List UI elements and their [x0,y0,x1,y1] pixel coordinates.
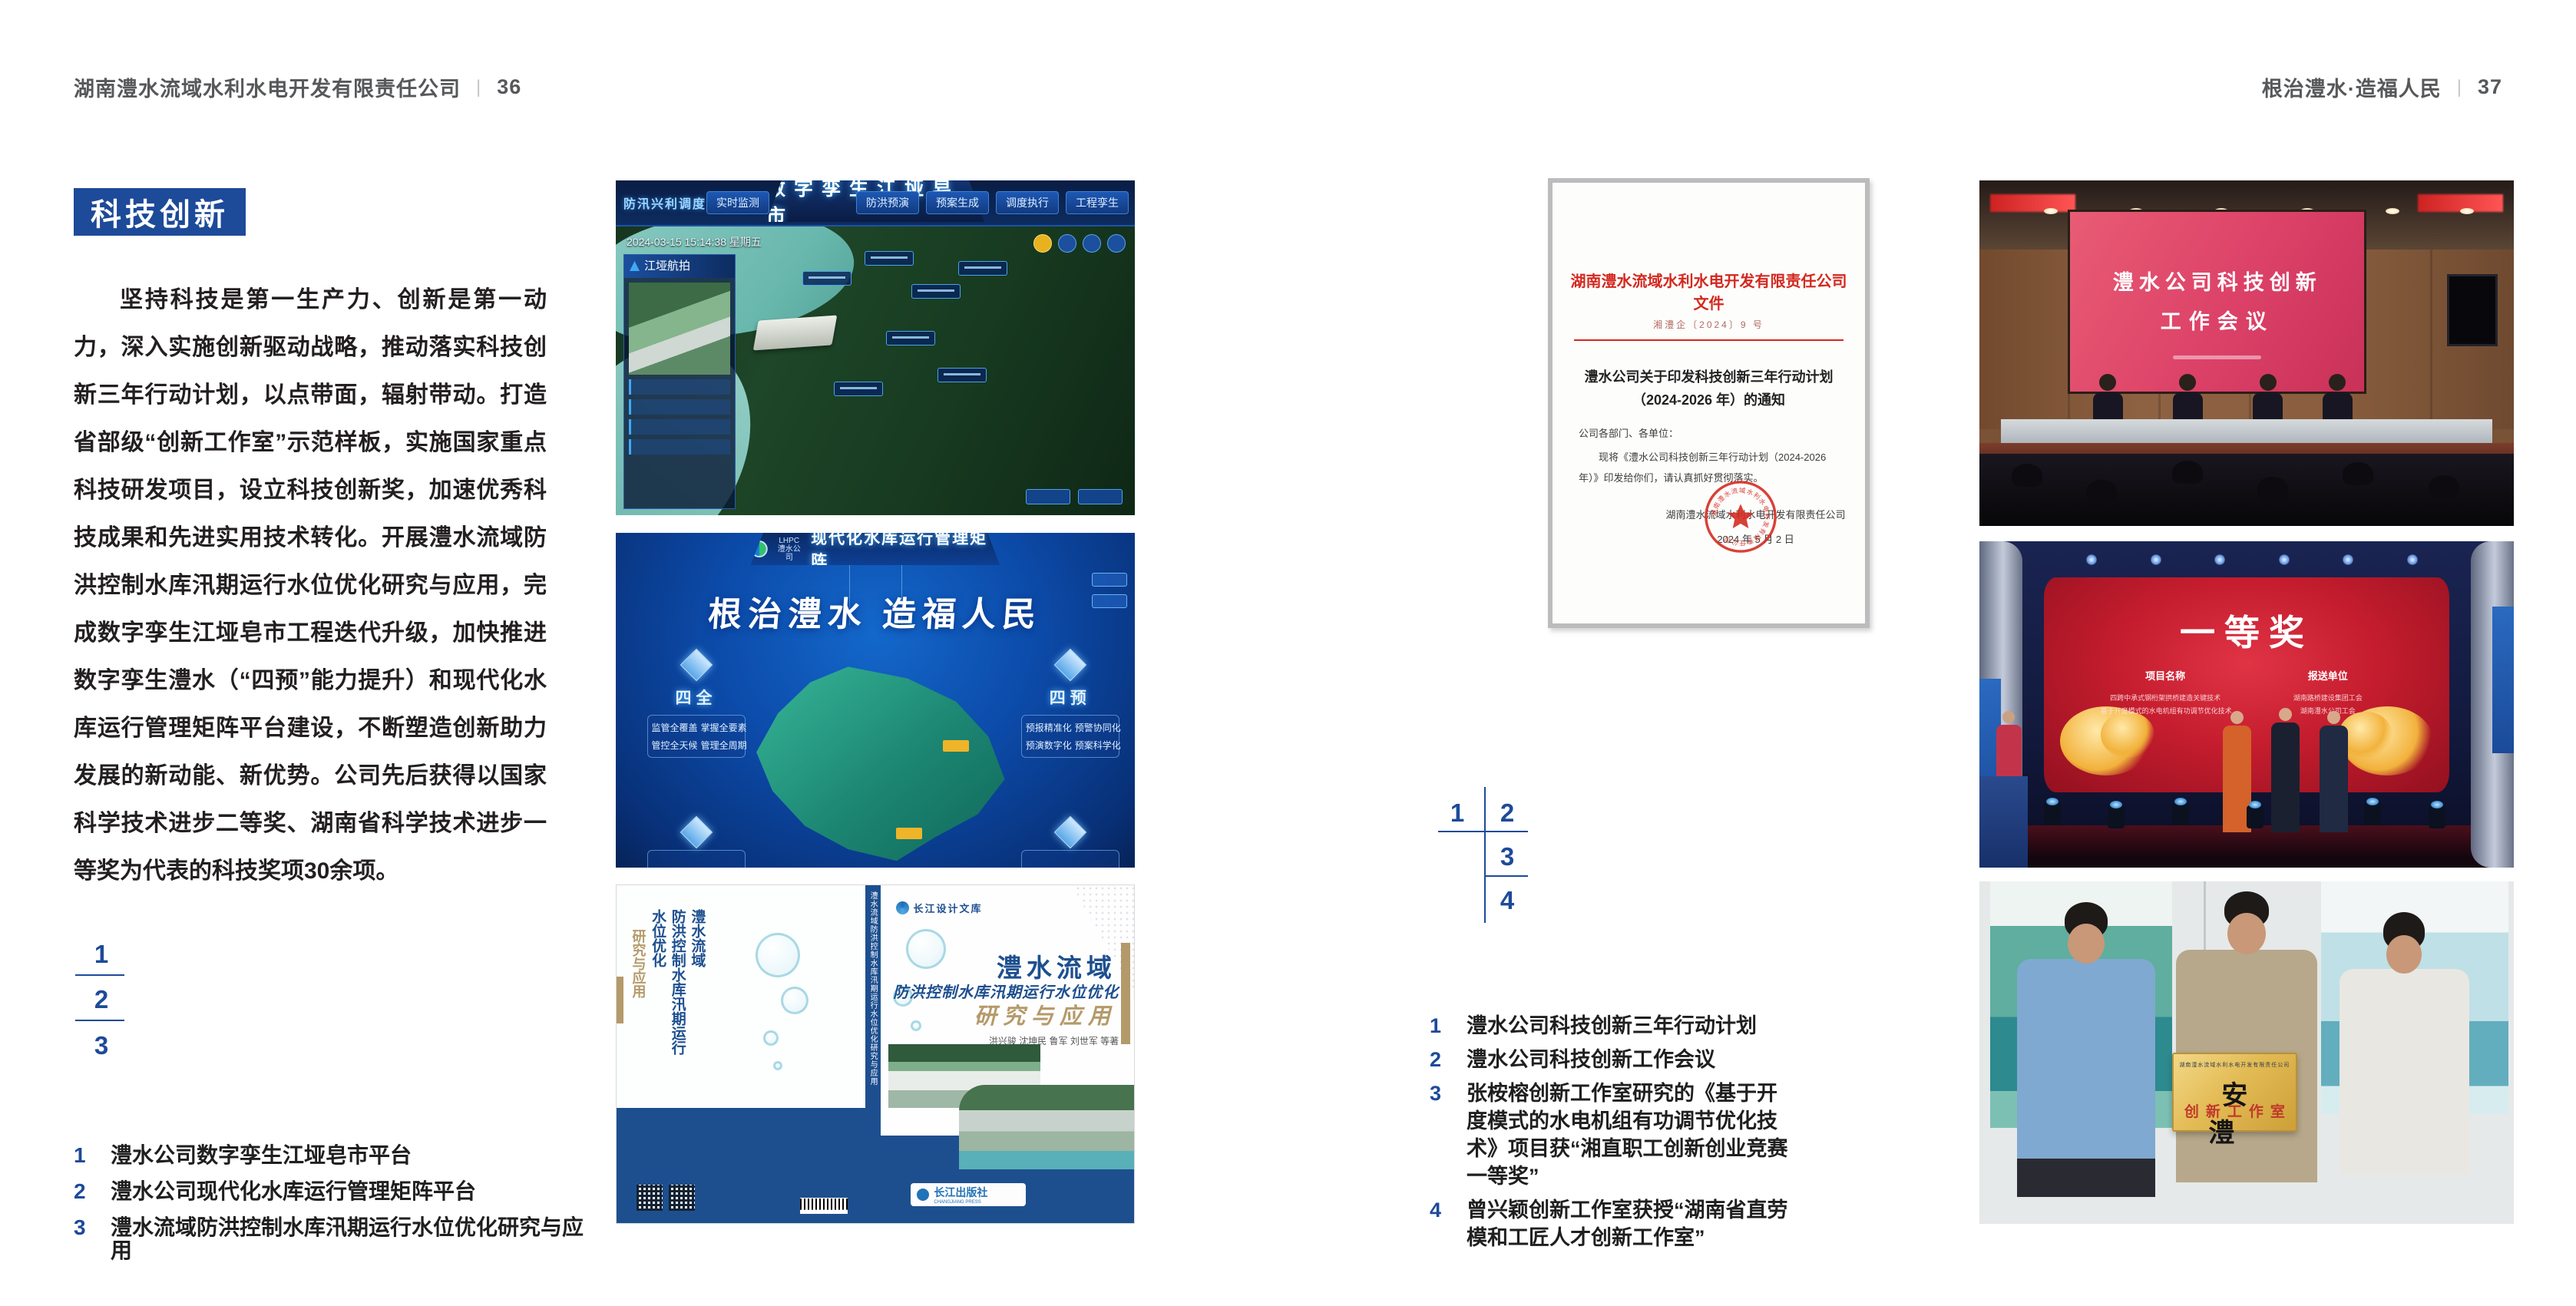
tool-icon [1083,234,1101,253]
document-number: 湘澧企〔2024〕9 号 [1553,318,1865,331]
caption-text: 澧水公司科技创新工作会议 [1467,1048,1715,1071]
right-page-header: 根治澧水·造福人民 | 37 [2262,72,2502,102]
award-headline: 一等奖 [2044,605,2450,656]
caption-row: 3 澧水流域防洪控制水库汛期运行水位优化研究与应用 [74,1216,596,1262]
person-white-shirt [2326,912,2482,1224]
caption-number: 3 [1430,1080,1441,1107]
dashboard-bottom-button [1026,489,1070,504]
decor-blue-panel [2492,607,2514,753]
audience-head [2429,475,2459,498]
book-title-line1: 澧水流域 [997,947,1116,984]
floor-light [2247,805,2264,828]
caption-row: 2 澧水公司现代化水库运行管理矩阵平台 [74,1180,596,1203]
diamond-icon [1054,649,1086,681]
data-row [629,379,730,395]
banner-date-line [2173,355,2261,359]
document-title: 澧水公司关于印发科技创新三年行动计划 （2024-2026 年）的通知 [1553,365,1865,412]
figure-index-vline [1484,787,1486,923]
book-back-cover: 澧水流域 防洪控制水库汛期运行水位优化 研究与应用 [617,885,865,1223]
left-captions: 1 澧水公司数字孪生江垭皂市平台 2 澧水公司现代化水库运行管理矩阵平台 3 澧… [74,1144,596,1275]
map-callout [911,284,961,299]
nav-button: 调度执行 [996,191,1059,214]
caption-text: 澧水公司科技创新三年行动计划 [1467,1014,1757,1037]
figure-index-3: 3 [1488,844,1526,870]
map-marker [943,740,969,752]
caption-number: 3 [74,1216,86,1239]
matrix-title: 现代化水库运行管理矩阵 [811,533,1000,572]
water-bubble [763,1030,779,1046]
diamond-icon [1054,816,1086,848]
map-callout [865,251,914,266]
stage-spotlight [2086,554,2097,565]
ceiling-light [2044,208,2058,214]
floor-light [2429,805,2445,828]
dashboard-toolbar-icons [1033,234,1126,253]
logo-abbr: LHPC [774,537,804,545]
document-page: 湖南澧水流域水利水电开发有限责任公司文件 湘澧企〔2024〕9 号 澧水公司关于… [1553,183,1865,623]
back-title-3: 研究与应用 [630,929,646,998]
spine-title: 澧水流域防洪控制水库汛期运行水位优化研究与应用 [867,891,878,1223]
matrix-node-siquan: 四全 监管全覆盖 掌握全要素 管控全天候 管理全周期 [647,653,746,758]
photo-innovation-meeting: 澧水公司科技创新 工作会议 [1979,180,2514,526]
node-item: 监管全覆盖 [652,721,698,734]
figure-index-2: 2 [1488,800,1526,826]
back-cover-vertical-title: 澧水流域 防洪控制水库汛期运行水位优化 研究与应用 [629,909,706,1058]
audience [1979,454,2514,527]
column-item: 四跨中承式钢桁架拱桥建造关键技术 [2101,692,2230,705]
node-item: 管理全周期 [701,739,747,752]
plaque-subtitle: 创新工作室 [2174,1100,2297,1121]
plaque-org-line: 湖南澧水流域水利水电开发有限责任公司 [2174,1061,2297,1069]
document-title-line1: 澧水公司关于印发科技创新三年行动计划 [1553,365,1865,388]
panel-title: 江垭航拍 [624,255,735,278]
aerial-video-thumbnail [629,283,730,375]
document-red-title: 湖南澧水流域水利水电开发有限责任公司文件 [1565,269,1852,313]
stage-spotlight [2343,554,2353,565]
face [2386,935,2422,974]
header-separator: | [476,77,481,98]
series-line: 长江设计文库 [896,901,983,915]
back-title-2: 防洪控制水库汛期运行水位优化 [650,909,686,1055]
dashboard-corner-label: 防汛兴利调度 [623,193,706,212]
node-items: 预报精准化 预警协同化 预演数字化 预案科学化 [1021,715,1119,758]
awardee-suit [2316,711,2350,841]
data-row [629,399,730,415]
figure-index-4: 4 [1488,888,1526,914]
book-spine: 澧水流域防洪控制水库汛期运行水位优化研究与应用 [865,885,881,1223]
figure-index-1: 1 [77,941,126,967]
matrix-node-bottom-right [1021,821,1119,868]
nav-button: 实时监测 [706,191,769,214]
book-title-line3: 研究与应用 [974,998,1116,1030]
dam-photo-2 [959,1085,1134,1169]
qr-code [669,1185,695,1211]
caption-number: 4 [1430,1196,1441,1224]
back-title-1: 澧水流域 [689,909,705,967]
caption-row: 2 澧水公司科技创新工作会议 [1430,1046,1791,1073]
tool-icon [1058,234,1076,253]
banner-line1: 澧水公司科技创新 [2070,266,2364,296]
decor-tan-bar [1121,943,1130,1044]
map-callout [834,382,883,396]
map-callout [886,331,935,346]
logo-caption: LHPC 澧水公司 [774,537,804,562]
figure-official-document: 湖南澧水流域水利水电开发有限责任公司文件 湘澧企〔2024〕9 号 澧水公司关于… [1548,178,1870,628]
dashboard-timestamp: 2024-03-15 15:14:38 星期五 [627,234,762,250]
diamond-icon [680,816,712,848]
person-blue-polo [2006,902,2167,1224]
caption-row: 4 曾兴颖创新工作室获授“湖南省直劳模和工匠人才创新工作室” [1430,1196,1791,1251]
seated-speaker [2316,374,2359,422]
map-callout [937,368,987,382]
left-page-header: 湖南澧水流域水利水电开发有限责任公司 | 36 [74,72,521,102]
nav-button: 预案生成 [926,191,989,214]
stage-spotlight [2151,554,2161,565]
node-item: 预案科学化 [1075,739,1121,752]
node-item: 预警协同化 [1075,721,1121,734]
trousers [2017,1159,2155,1197]
page-slogan: 根治澧水·造福人民 [2262,72,2442,102]
audience-head [2257,477,2288,500]
photo-award-ceremony: 一等奖 项目名称 四跨中承式钢桁架拱桥建造关键技术 基于开度模式的水电机组有功调… [1979,541,2514,868]
decor-red-strip [1990,194,2075,212]
floor-light [2108,805,2125,828]
water-bubble [911,1020,921,1031]
innovation-studio-plaque: 湖南澧水流域水利水电开发有限责任公司 安澧 创新工作室 [2172,1053,2298,1132]
seated-speaker [2247,374,2290,422]
header-separator: | [2457,77,2462,98]
page-number-right: 37 [2478,75,2502,99]
dashboard-nav-right: 防洪预演 预案生成 调度执行 工程孪生 [856,191,1129,214]
torso [2340,969,2470,1175]
figure-index-hline [1484,875,1528,877]
document-red-rule [1574,339,1844,341]
qr-code [637,1185,663,1211]
seated-speaker [2167,374,2210,422]
seated-speaker [2086,374,2129,422]
brochure-spread: 湖南澧水流域水利水电开发有限责任公司 | 36 科技创新 坚持科技是第一生产力、… [0,0,2576,1306]
figure-index-hline [1438,831,1528,832]
banner-line2: 工作会议 [2070,305,2364,335]
matrix-node-siyu: 四预 预报精准化 预警协同化 预演数字化 预案科学化 [1021,653,1119,758]
audience-head [2172,461,2203,484]
section-badge: 科技创新 [74,188,246,236]
face [2068,924,2105,964]
diamond-icon [680,649,712,681]
official-seal-icon: 湖南澧水流域水利水电开发有限责任公司 [1703,479,1778,554]
publisher-name-en: CHANGJIANG PRESS [934,1200,987,1205]
stage-spotlight [2279,554,2290,565]
caption-row: 1 澧水公司科技创新三年行动计划 [1430,1012,1791,1040]
basin-map [746,666,1016,861]
caption-number: 2 [74,1180,86,1203]
section-body-text: 坚持科技是第一生产力、创新是第一动力，深入实施创新驱动战略，推动落实科技创新三年… [74,276,547,895]
nav-button: 工程孪生 [1066,191,1129,214]
node-label: 四全 [647,686,746,709]
decor-tan-block [617,977,623,1024]
document-title-line2: （2024-2026 年）的通知 [1553,388,1865,412]
face [2227,913,2266,954]
dashboard-bottom-button [1078,489,1123,504]
dashboard-header: 防汛兴利调度 实时监测 洪水预报 防汛预警 数字孪生江垭皂市 防洪预演 预案生成… [616,180,1135,226]
matrix-header: LHPC 澧水公司 现代化水库运行管理矩阵 [751,533,1000,565]
user-icon [1033,234,1052,253]
caption-number: 2 [1430,1046,1441,1073]
figure-digital-twin-dashboard: 防汛兴利调度 实时监测 洪水预报 防汛预警 数字孪生江垭皂市 防洪预演 预案生成… [616,180,1135,515]
floor-light [2172,802,2189,825]
node-items: 监管全覆盖 掌握全要素 管控全天候 管理全周期 [647,715,746,758]
stage-spotlight [2407,554,2418,565]
water-bubble [756,933,800,977]
audience-head [2086,480,2117,503]
figure-index-divider [75,974,124,976]
decor-gold-glow [2101,712,2154,758]
barcode [800,1198,847,1214]
caption-text: 张桉榕创新工作室研究的《基于开度模式的水电机组有功调节优化技术》项目获“湘直职工… [1467,1082,1788,1188]
node-item: 管控全天候 [652,739,698,752]
back-cover-blue-band [617,1108,865,1223]
caption-number: 1 [1430,1012,1441,1040]
node-item: 预报精准化 [1026,721,1072,734]
node-item: 掌握全要素 [701,721,747,734]
water-bubble [773,1061,782,1070]
ceiling-light [2386,208,2399,214]
figure-index-3: 3 [77,1033,126,1059]
dashboard-side-panel: 江垭航拍 [623,254,736,509]
column-title: 项目名称 [2101,668,2230,683]
caption-row: 1 澧水公司数字孪生江垭皂市平台 [74,1144,596,1167]
figure-index-divider [75,1020,124,1021]
node-items [647,850,746,868]
figure-book-cover: 澧水流域 防洪控制水库汛期运行水位优化 研究与应用 澧水流域防洪控制水库汛期运行… [616,884,1135,1224]
column-item: 湖南路桥建设集团工会 [2263,692,2392,705]
node-item: 预演数字化 [1026,739,1072,752]
water-bubble [906,929,946,969]
map-callout [802,271,852,286]
node-items [1021,850,1119,868]
caption-text: 曾兴颖创新工作室获授“湖南省直劳模和工匠人才创新工作室” [1467,1199,1788,1249]
floor-light [2044,802,2061,825]
dam-structure [752,315,837,350]
matrix-slogan: 根治澧水 造福人民 [616,587,1135,636]
floor-light [2364,802,2381,825]
torso [2017,959,2155,1159]
caption-number: 1 [74,1144,86,1167]
publisher-logo-icon [917,1189,929,1201]
award-column-project: 项目名称 四跨中承式钢桁架拱桥建造关键技术 基于开度模式的水电机组有功调节优化技… [2101,668,2230,718]
figure-index-1: 1 [1438,800,1476,826]
column-title: 报送单位 [2263,668,2392,683]
water-bubble [781,987,809,1014]
company-logo-icon [751,541,768,557]
photo-innovation-studio-group: 湖南澧水流域水利水电开发有限责任公司 安澧 创新工作室 [1979,881,2514,1224]
map-callout [958,261,1007,276]
document-salutation: 公司各部门、各单位： [1579,425,1678,440]
figure-index-2: 2 [77,987,126,1013]
series-name: 长江设计文库 [914,901,983,915]
awardee-suit [2268,708,2303,841]
node-label: 四预 [1021,686,1119,709]
matrix-node-bottom-left [647,821,746,868]
stage-spotlight [2214,554,2225,565]
map-marker [896,828,922,839]
nav-button: 防洪预演 [856,191,919,214]
right-captions: 1 澧水公司科技创新三年行动计划 2 澧水公司科技创新工作会议 3 张桉榕创新工… [1430,1012,1791,1258]
wall-tv [2447,274,2498,347]
figure-matrix-platform: LHPC 澧水公司 现代化水库运行管理矩阵 根治澧水 造福人民 四全 监管全覆盖… [616,533,1135,868]
tool-icon [1107,234,1126,253]
publisher-mark: 长江出版社 CHANGJIANG PRESS [911,1183,1026,1206]
company-name: 湖南澧水流域水利水电开发有限责任公司 [74,72,461,102]
matrix-small-button [1092,573,1127,587]
audience-head [2343,462,2373,485]
caption-text: 澧水公司数字孪生江垭皂市平台 [111,1143,412,1167]
logo-name: 澧水公司 [774,545,804,562]
meeting-banner-screen: 澧水公司科技创新 工作会议 [2070,212,2364,392]
audience-head [2012,464,2042,487]
book-front-cover: 长江设计文库 澧水流域 防洪控制水库汛期运行水位优化 研究与应用 洪兴骏 沈坤民… [881,885,1134,1223]
publisher-name: 长江出版社 [934,1185,987,1200]
page-number-left: 36 [497,75,521,99]
host-podium [1979,776,2028,868]
data-row [629,419,730,435]
series-logo-icon [896,901,909,914]
caption-row: 3 张桉榕创新工作室研究的《基于开度模式的水电机组有功调节优化技术》项目获“湘直… [1430,1080,1791,1190]
data-row [629,439,730,455]
caption-text: 澧水公司现代化水库运行管理矩阵平台 [111,1179,476,1203]
column-item: 基于开度模式的水电机组有功调节优化技术 [2101,705,2230,718]
caption-text: 澧水流域防洪控制水库汛期运行水位优化研究与应用 [111,1215,584,1262]
